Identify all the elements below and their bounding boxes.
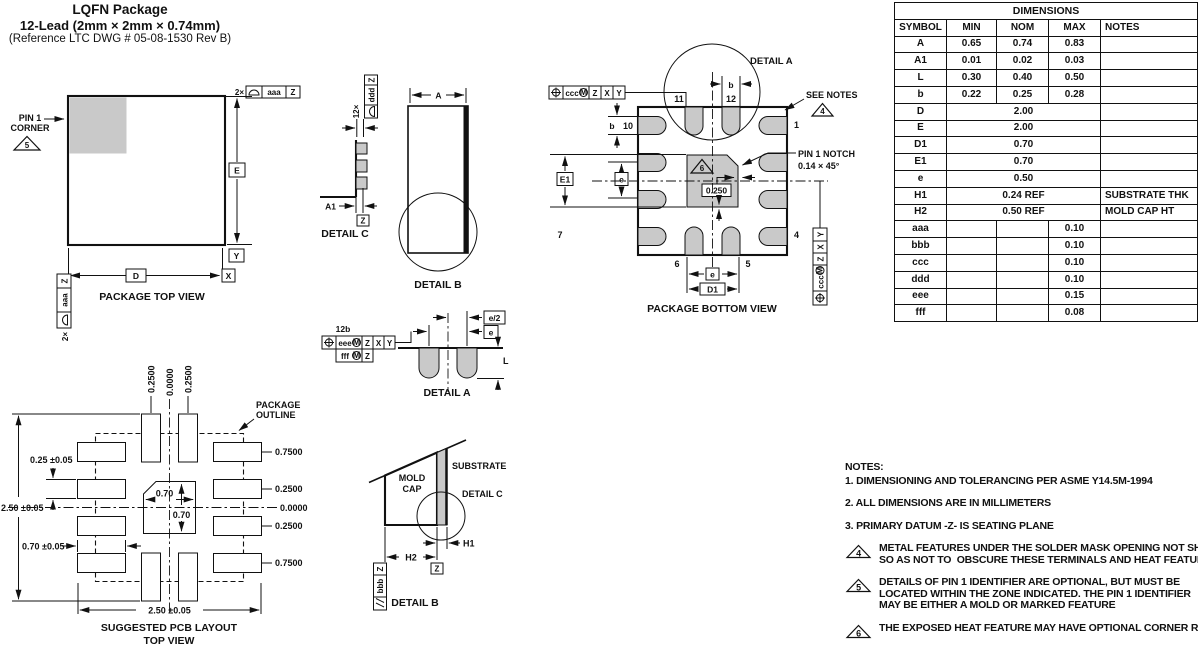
mold-cap-label: MOLD bbox=[399, 473, 426, 483]
svg-text:Y: Y bbox=[616, 89, 622, 98]
detail-a-caption: DETAIL A bbox=[423, 387, 470, 399]
detail-c-pointer-label: DETAIL C bbox=[462, 489, 503, 499]
dim-A: A bbox=[435, 91, 441, 101]
pcb-caption: SUGGESTED PCB LAYOUT bbox=[101, 622, 238, 634]
table-cell bbox=[1101, 254, 1198, 271]
svg-text:5: 5 bbox=[25, 141, 30, 150]
table-cell bbox=[1101, 288, 1198, 305]
table-cell: 0.24 REF bbox=[947, 187, 1101, 204]
svg-text:M: M bbox=[353, 350, 361, 360]
fcf-position-ccc-vertical: ccc M Z X Y bbox=[813, 228, 827, 305]
note-line: MAY BE EITHER A MOLD OR MARKED FEATURE bbox=[879, 600, 1191, 612]
package-top-view: PIN 1 CORNER 5 2× aaa Z E bbox=[10, 86, 300, 341]
svg-text:OUTLINE: OUTLINE bbox=[256, 410, 296, 420]
svg-text:ccc: ccc bbox=[565, 89, 579, 98]
table-cell bbox=[947, 238, 997, 255]
table-cell: 0.65 bbox=[947, 36, 997, 53]
datum-Z: Z bbox=[435, 565, 440, 574]
dim-e-bottom: e bbox=[710, 270, 715, 280]
bottom-view-caption: PACKAGE BOTTOM VIEW bbox=[647, 303, 777, 315]
table-cell: A bbox=[895, 36, 947, 53]
svg-text:4: 4 bbox=[820, 107, 825, 116]
pin-label-6: 6 bbox=[674, 259, 679, 269]
pcb-col-label: 0.2500 bbox=[147, 365, 157, 393]
table-cell: aaa bbox=[895, 221, 947, 238]
table-cell: 0.70 bbox=[947, 154, 1101, 171]
svg-text:CORNER: CORNER bbox=[10, 123, 50, 133]
note-text: THE EXPOSED HEAT FEATURE MAY HAVE OPTION… bbox=[879, 623, 1198, 635]
table-row: E10.70 bbox=[895, 154, 1198, 171]
detail-b-section-caption: DETAIL B bbox=[391, 597, 439, 609]
detail-a-pointer-label: DETAIL A bbox=[750, 56, 793, 67]
detail-a-view: 12b eee M Z X Y fff bbox=[322, 311, 509, 399]
dim-e: e bbox=[489, 328, 494, 338]
table-row: E2.00 bbox=[895, 120, 1198, 137]
pin-label-4: 4 bbox=[794, 230, 799, 240]
package-outline-label: PACKAGE bbox=[256, 400, 300, 410]
table-cell: SUBSTRATE THK bbox=[1101, 187, 1198, 204]
table-cell bbox=[1101, 305, 1198, 322]
datum-X: X bbox=[226, 271, 232, 281]
svg-text:Z: Z bbox=[817, 256, 826, 261]
svg-text:4: 4 bbox=[856, 549, 861, 559]
table-cell bbox=[997, 305, 1049, 322]
notes-section: NOTES: 1. DIMENSIONING AND TOLERANCING P… bbox=[845, 462, 1198, 648]
notes-list: 1. DIMENSIONING AND TOLERANCING PER ASME… bbox=[845, 476, 1198, 639]
pcb-layout-view: 0.70 0.70 0.2500 0.0000 0.2500 0.7500 0.… bbox=[1, 365, 308, 647]
table-cell: 0.10 bbox=[1049, 271, 1101, 288]
detail-b-section-view: MOLD CAP SUBSTRATE DETAIL C H1 H2 bbb bbox=[369, 440, 506, 610]
svg-text:Z: Z bbox=[61, 278, 70, 283]
table-cell: ccc bbox=[895, 254, 947, 271]
table-cell: 0.50 bbox=[947, 170, 1101, 187]
table-row: eee0.15 bbox=[895, 288, 1198, 305]
table-cell: H2 bbox=[895, 204, 947, 221]
note-item: 1. DIMENSIONING AND TOLERANCING PER ASME… bbox=[845, 476, 1198, 488]
table-cell: 0.30 bbox=[947, 70, 997, 87]
svg-text:12×: 12× bbox=[352, 104, 361, 118]
dim-e-left: e bbox=[619, 175, 624, 185]
table-cell: ddd bbox=[895, 271, 947, 288]
svg-text:CAP: CAP bbox=[402, 484, 421, 494]
table-cell bbox=[1101, 86, 1198, 103]
table-title: DIMENSIONS bbox=[895, 3, 1198, 20]
dim-b-top: b bbox=[728, 80, 733, 90]
svg-text:aaa: aaa bbox=[267, 88, 281, 97]
svg-text:X: X bbox=[376, 339, 382, 348]
pcb-col-label: 0.2500 bbox=[184, 365, 194, 393]
note-flag-triangle-icon: 4 bbox=[845, 544, 872, 559]
table-cell bbox=[1101, 36, 1198, 53]
dim-L: L bbox=[503, 356, 509, 366]
col-header-notes: NOTES bbox=[1101, 19, 1198, 36]
svg-text:ccc: ccc bbox=[817, 275, 826, 289]
pin-label-10: 10 bbox=[623, 121, 633, 131]
table-cell: 0.25 bbox=[997, 86, 1049, 103]
table-cell bbox=[997, 221, 1049, 238]
table-row: ccc0.10 bbox=[895, 254, 1198, 271]
table-cell bbox=[997, 254, 1049, 271]
note-item: 3. PRIMARY DATUM -Z- IS SEATING PLANE bbox=[845, 521, 1198, 533]
table-cell bbox=[947, 305, 997, 322]
pcb-row-label: 0.0000 bbox=[280, 503, 308, 513]
pin-label-1: 1 bbox=[794, 120, 799, 130]
svg-text:2×: 2× bbox=[235, 88, 244, 97]
note-text: DETAILS OF PIN 1 IDENTIFIER ARE OPTIONAL… bbox=[879, 577, 1191, 612]
table-cell bbox=[997, 271, 1049, 288]
svg-text:bbb: bbb bbox=[376, 579, 385, 594]
col-header-symbol: SYMBOL bbox=[895, 19, 947, 36]
table-cell bbox=[1101, 70, 1198, 87]
pin1-zone bbox=[70, 98, 127, 154]
table-cell: 0.50 bbox=[1049, 70, 1101, 87]
table-row: A10.010.020.03 bbox=[895, 53, 1198, 70]
dim-0250: 0.250 bbox=[706, 186, 728, 196]
dim-A1: A1 bbox=[325, 202, 336, 212]
table-cell: L bbox=[895, 70, 947, 87]
note-item: 2. ALL DIMENSIONS ARE IN MILLIMETERS bbox=[845, 498, 1198, 510]
table-cell bbox=[947, 221, 997, 238]
table-row: ddd0.10 bbox=[895, 271, 1198, 288]
see-notes-label: SEE NOTES bbox=[806, 90, 858, 100]
circled-m-icon: M bbox=[353, 350, 361, 360]
svg-text:Z: Z bbox=[365, 339, 370, 348]
detail-c-view: 12× ddd Z A1 Z DETAIL C bbox=[320, 75, 378, 240]
table-cell: D1 bbox=[895, 137, 947, 154]
table-row: bbb0.10 bbox=[895, 238, 1198, 255]
detail-b-caption: DETAIL B bbox=[414, 279, 462, 291]
table-cell bbox=[1101, 53, 1198, 70]
table-cell: D bbox=[895, 103, 947, 120]
table-cell: 0.10 bbox=[1049, 238, 1101, 255]
svg-text:X: X bbox=[817, 244, 826, 250]
table-row: b0.220.250.28 bbox=[895, 86, 1198, 103]
svg-text:Z: Z bbox=[365, 352, 370, 361]
table-cell bbox=[1101, 154, 1198, 171]
detail-c-caption: DETAIL C bbox=[321, 228, 369, 240]
table-cell: 0.03 bbox=[1049, 53, 1101, 70]
table-cell: b bbox=[895, 86, 947, 103]
package-bottom-view: ccc M Z X Y bbox=[549, 44, 858, 315]
fcf-parallel-bbb-vertical: bbb Z bbox=[374, 563, 387, 610]
table-row: D2.00 bbox=[895, 103, 1198, 120]
dim-center-height: 0.70 bbox=[173, 510, 191, 520]
table-cell bbox=[947, 271, 997, 288]
detail-b-view: A DETAIL B bbox=[399, 88, 477, 291]
pcb-row-label: 0.2500 bbox=[275, 484, 303, 494]
table-cell bbox=[1101, 170, 1198, 187]
table-cell bbox=[1101, 238, 1198, 255]
note-line: 2. ALL DIMENSIONS ARE IN MILLIMETERS bbox=[845, 498, 1051, 510]
table-row: D10.70 bbox=[895, 137, 1198, 154]
table-cell: fff bbox=[895, 305, 947, 322]
table-cell bbox=[1101, 221, 1198, 238]
table-cell: 2.00 bbox=[947, 103, 1101, 120]
table-cell: 0.40 bbox=[997, 70, 1049, 87]
dim-pad-length: 0.70 ±0.05 bbox=[22, 542, 64, 552]
dim-pad-width: 0.25 ±0.05 bbox=[30, 455, 72, 465]
svg-text:M: M bbox=[815, 267, 825, 275]
note-item: 6THE EXPOSED HEAT FEATURE MAY HAVE OPTIO… bbox=[845, 623, 1198, 639]
table-row: H20.50 REFMOLD CAP HT bbox=[895, 204, 1198, 221]
col-header-min: MIN bbox=[947, 19, 997, 36]
dim-center-width: 0.70 bbox=[156, 489, 174, 499]
dim-pcb-height: 2.50 ±0.05 bbox=[1, 503, 43, 513]
pin-label-7: 7 bbox=[557, 230, 562, 240]
fcf-position-eee-fff: eee M Z X Y fff M Z bbox=[322, 332, 411, 363]
svg-text:aaa: aaa bbox=[61, 293, 70, 307]
svg-text:6: 6 bbox=[856, 628, 861, 638]
qty-12b: 12b bbox=[336, 324, 351, 334]
svg-text:Z: Z bbox=[291, 88, 296, 97]
table-cell: 0.22 bbox=[947, 86, 997, 103]
fcf-profile-ddd-vertical: 12× ddd Z bbox=[352, 75, 378, 118]
table-cell: 0.15 bbox=[1049, 288, 1101, 305]
note-text: 1. DIMENSIONING AND TOLERANCING PER ASME… bbox=[845, 476, 1153, 488]
dim-H1: H1 bbox=[463, 539, 475, 549]
top-view-caption: PACKAGE TOP VIEW bbox=[99, 291, 205, 303]
substrate-label: SUBSTRATE bbox=[452, 461, 506, 471]
table-cell: 0.50 REF bbox=[947, 204, 1101, 221]
svg-text:X: X bbox=[604, 89, 610, 98]
svg-text:2×: 2× bbox=[61, 332, 70, 341]
table-cell: 0.01 bbox=[947, 53, 997, 70]
table-cell: eee bbox=[895, 288, 947, 305]
table-cell: bbb bbox=[895, 238, 947, 255]
table-row: aaa0.10 bbox=[895, 221, 1198, 238]
notes-heading: NOTES: bbox=[845, 462, 1198, 474]
table-row: L0.300.400.50 bbox=[895, 70, 1198, 87]
table-cell: MOLD CAP HT bbox=[1101, 204, 1198, 221]
pin-label-11: 11 bbox=[674, 94, 684, 104]
col-header-nom: NOM bbox=[997, 19, 1049, 36]
svg-text:M: M bbox=[353, 337, 361, 347]
pin1-notch-label: PIN 1 NOTCH bbox=[798, 149, 855, 159]
svg-text:Z: Z bbox=[376, 566, 385, 571]
svg-text:fff: fff bbox=[341, 352, 349, 361]
note-text: 2. ALL DIMENSIONS ARE IN MILLIMETERS bbox=[845, 498, 1051, 510]
pin-label-12: 12 bbox=[726, 94, 736, 104]
col-header-max: MAX bbox=[1049, 19, 1101, 36]
table-cell: 0.28 bbox=[1049, 86, 1101, 103]
svg-text:6: 6 bbox=[700, 164, 705, 173]
table-cell bbox=[1101, 103, 1198, 120]
svg-text:Y: Y bbox=[817, 231, 826, 237]
table-cell: A1 bbox=[895, 53, 947, 70]
pcb-row-label: 0.7500 bbox=[275, 558, 303, 568]
table-cell: 0.08 bbox=[1049, 305, 1101, 322]
svg-text:ddd: ddd bbox=[368, 88, 377, 103]
table-cell bbox=[1101, 271, 1198, 288]
note-flag-triangle-icon: 6 bbox=[845, 624, 872, 639]
datum-Y: Y bbox=[234, 251, 240, 261]
svg-text:Y: Y bbox=[387, 339, 393, 348]
table-row: e0.50 bbox=[895, 170, 1198, 187]
table-cell: 2.00 bbox=[947, 120, 1101, 137]
svg-text:0.14 × 45°: 0.14 × 45° bbox=[798, 161, 840, 171]
pcb-row-label: 0.2500 bbox=[275, 521, 303, 531]
table-cell: E1 bbox=[895, 154, 947, 171]
dim-e-half: e/2 bbox=[489, 313, 501, 323]
fcf-profile-aaa-vertical: 2× aaa Z bbox=[57, 274, 71, 341]
datum-Z: Z bbox=[361, 217, 366, 226]
dimensions-table: DIMENSIONS SYMBOL MIN NOM MAX NOTES A0.6… bbox=[894, 2, 1198, 322]
dim-pcb-width: 2.50 ±0.05 bbox=[148, 606, 190, 616]
table-row: fff0.08 bbox=[895, 305, 1198, 322]
svg-text:TOP VIEW: TOP VIEW bbox=[144, 635, 195, 647]
package-drawing-page: LQFN Package 12-Lead (2mm × 2mm × 0.74mm… bbox=[0, 0, 1198, 648]
table-cell: E bbox=[895, 120, 947, 137]
table-row: H10.24 REFSUBSTRATE THK bbox=[895, 187, 1198, 204]
pcb-row-label: 0.7500 bbox=[275, 447, 303, 457]
table-cell: e bbox=[895, 170, 947, 187]
table-cell: 0.83 bbox=[1049, 36, 1101, 53]
circled-m-icon: M bbox=[353, 337, 361, 347]
table-cell bbox=[1101, 137, 1198, 154]
svg-text:eee: eee bbox=[338, 339, 352, 348]
table-row: A0.650.740.83 bbox=[895, 36, 1198, 53]
dim-b-left: b bbox=[609, 121, 614, 131]
note-line: DETAILS OF PIN 1 IDENTIFIER ARE OPTIONAL… bbox=[879, 577, 1191, 589]
table-cell bbox=[1101, 120, 1198, 137]
svg-text:M: M bbox=[580, 87, 588, 97]
table-cell bbox=[947, 254, 997, 271]
note-line: 1. DIMENSIONING AND TOLERANCING PER ASME… bbox=[845, 476, 1153, 488]
table-cell bbox=[947, 288, 997, 305]
circled-m-icon: M bbox=[580, 87, 588, 97]
svg-text:5: 5 bbox=[856, 583, 861, 593]
table-cell: 0.74 bbox=[997, 36, 1049, 53]
note-item: 5DETAILS OF PIN 1 IDENTIFIER ARE OPTIONA… bbox=[845, 577, 1198, 612]
table-header-row: SYMBOL MIN NOM MAX NOTES bbox=[895, 19, 1198, 36]
dim-H2: H2 bbox=[405, 553, 417, 563]
note-line: SO AS NOT TO OBSCURE THESE TERMINALS AND… bbox=[879, 555, 1198, 567]
table-cell bbox=[997, 238, 1049, 255]
pin1-corner-label: PIN 1 bbox=[19, 113, 42, 123]
table-cell: 0.10 bbox=[1049, 254, 1101, 271]
dim-D: D bbox=[133, 271, 139, 281]
table-cell: 0.10 bbox=[1049, 221, 1101, 238]
note-line: METAL FEATURES UNDER THE SOLDER MASK OPE… bbox=[879, 543, 1198, 555]
pcb-col-label: 0.0000 bbox=[165, 368, 175, 396]
svg-text:Z: Z bbox=[593, 89, 598, 98]
pin-label-5: 5 bbox=[745, 259, 750, 269]
note-line: THE EXPOSED HEAT FEATURE MAY HAVE OPTION… bbox=[879, 623, 1198, 635]
circled-m-icon: M bbox=[815, 267, 825, 275]
table-cell: 0.70 bbox=[947, 137, 1101, 154]
table-cell bbox=[997, 288, 1049, 305]
note-text: METAL FEATURES UNDER THE SOLDER MASK OPE… bbox=[879, 543, 1198, 566]
svg-text:Z: Z bbox=[368, 77, 377, 82]
dim-D1: D1 bbox=[707, 285, 718, 295]
note-text: 3. PRIMARY DATUM -Z- IS SEATING PLANE bbox=[845, 521, 1054, 533]
note-line: 3. PRIMARY DATUM -Z- IS SEATING PLANE bbox=[845, 521, 1054, 533]
note-flag-triangle-icon: 5 bbox=[845, 578, 872, 593]
table-cell: H1 bbox=[895, 187, 947, 204]
dim-E: E bbox=[234, 166, 240, 176]
dim-E1: E1 bbox=[560, 175, 571, 185]
note-item: 4METAL FEATURES UNDER THE SOLDER MASK OP… bbox=[845, 543, 1198, 566]
dimensions-table-body: A0.650.740.83A10.010.020.03L0.300.400.50… bbox=[895, 36, 1198, 322]
table-cell: 0.02 bbox=[997, 53, 1049, 70]
